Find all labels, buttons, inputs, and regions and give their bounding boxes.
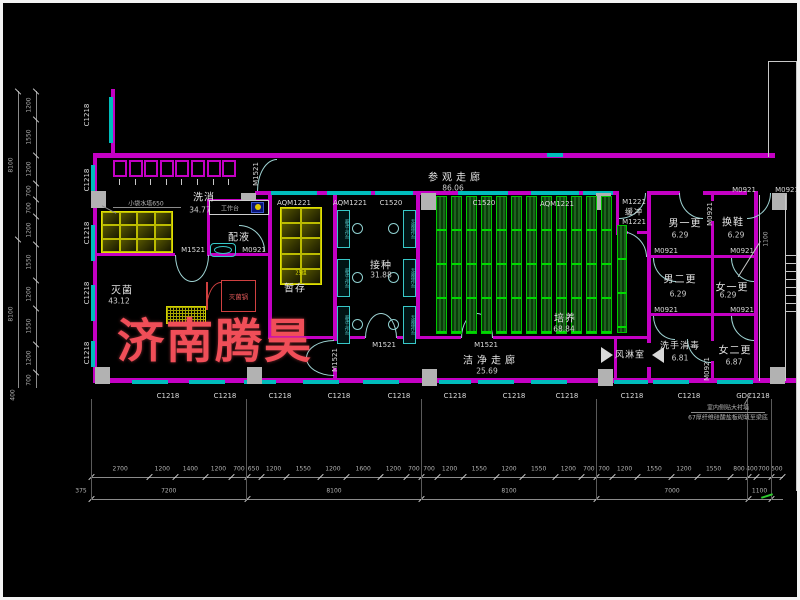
stair-width-dim: 1100 [763,231,770,246]
air-shower-door-left [601,347,613,363]
shelf-cell [155,212,173,225]
dim-tick [780,474,786,480]
door-code: M0921 [703,357,711,381]
dim-value: 1200 [26,161,33,176]
room-area-nanyigeng: 6.29 [672,231,689,240]
door-code: M0921 [730,306,754,314]
dim-value: 8100 [8,158,15,173]
room-label-fenglin: 风淋室 [615,348,645,361]
dim-value: 1550 [26,129,33,144]
dim-line [91,499,783,500]
column [422,369,437,386]
clean-bench: 超净工作台 [337,306,350,344]
door-code: M0921 [730,247,754,255]
dim-value: 1200 [26,350,33,365]
window-code-top: AQM1221 [333,199,367,207]
stair-line [785,287,796,288]
clean-bench: 无菌操作台 [403,306,416,344]
shelf-cell [155,225,173,238]
column [95,367,110,384]
room-label-nanyigeng: 男一更 [669,215,702,230]
dim-value: 1550 [531,466,546,473]
extension-line [91,399,92,500]
window-code-left: C1218 [83,104,91,127]
shelf-cell [301,208,321,223]
dim-value: 8100 [326,488,341,495]
door-arc [365,313,381,338]
stair-line [768,61,796,62]
shelf-cell [155,239,173,252]
door-code: M0921 [706,202,714,226]
wall [416,191,420,337]
window-code-bottom: C1218 [157,392,180,400]
room-label-peiye: 配液 [228,229,250,244]
wall [637,231,649,234]
wall [754,191,758,383]
shelf-cell [137,225,155,238]
room-label-zancun: 暂存 [284,280,306,295]
watermark-text: 济南腾昊 [117,303,313,372]
wall [91,253,175,256]
door-code: M1521 [181,246,205,254]
stair-line [796,61,797,491]
stair-line [759,195,760,381]
dim-value: 1200 [26,286,33,301]
dim-value: 1550 [26,254,33,269]
sink-tick [150,179,151,185]
shelf-cell [102,212,120,225]
window-code-bottom: C1218 [678,392,701,400]
stair-line [785,255,796,256]
door-arc [175,255,192,282]
stair-line [768,61,769,157]
dim-value: 1550 [647,466,662,473]
dim-value: 700 [26,202,33,213]
extension-line [596,399,597,500]
culture-rack [496,196,507,334]
window [327,191,371,195]
door-arc [257,159,277,191]
door-code: M0921 [654,247,678,255]
window-code-top: AQM1221 [540,200,574,208]
dim-value: 800 [733,466,744,473]
leader-line [113,207,181,208]
stair-line [785,303,796,304]
dim-value: 700 [583,466,594,473]
window-code-left: C1218 [83,342,91,365]
stair-line [785,271,796,272]
room-area-peiyang: 68.84 [553,325,574,334]
room-area-huanxie: 6.29 [728,231,745,240]
stair-line [785,295,796,296]
dim-value: 2700 [113,466,128,473]
shelf-cell [301,223,321,238]
wall [647,191,651,343]
dim-value: 700 [408,466,419,473]
window [91,285,95,321]
room-area-jiejing: 25.69 [476,367,497,376]
dim-value: 1200 [561,466,576,473]
stair-line [785,311,796,312]
dim-value: 700 [423,466,434,473]
stool [388,223,399,234]
stair-line [785,195,786,381]
shelf-cell [120,225,138,238]
sink-unit [191,160,205,177]
window [91,225,95,261]
cad-floor-plan: 110025组工作台灭菌锅小袋水塔650超净工作台超净工作台超净工作台无菌操作台… [0,0,800,600]
window [363,380,399,384]
window [717,380,753,384]
stool [352,223,363,234]
door-code: M0921 [732,186,756,194]
dim-value: 700 [233,466,244,473]
dim-value: 1200 [266,466,281,473]
door-arc [731,316,754,341]
stair-line [785,279,796,280]
dim-value: 8100 [501,488,516,495]
door-code: M1521 [474,341,498,349]
window [132,380,168,384]
shelf-count-label: 25组 [295,270,306,277]
dim-offset: 375 [75,488,86,495]
dim-value: 700 [26,185,33,196]
dim-value: 1200 [676,466,691,473]
sink-unit [129,160,143,177]
culture-rack [601,196,612,334]
wall [614,336,650,339]
window-code-bottom: C1218 [214,392,237,400]
culture-rack [466,196,477,334]
wall [647,191,680,195]
shelf-cell [102,225,120,238]
shelf-cell [281,254,301,269]
door-arc [653,316,675,340]
clean-bench: 超净工作台 [337,210,350,248]
window [531,191,579,195]
scale-dot-icon [255,204,261,210]
shelf-cell [102,239,120,252]
shelf-cell [120,212,138,225]
room-area-nanergeng: 6.29 [670,290,687,299]
stool [352,319,363,330]
wall-note-line1: 室内侧贴大衬墙 [707,403,749,412]
sink-tick [135,179,136,185]
wash-basin [210,243,236,257]
door-code: M1221 [622,198,646,206]
sink-unit [175,160,189,177]
room-label-huanxie: 换鞋 [722,214,744,229]
window [547,153,563,157]
shelf-cell [281,223,301,238]
dim-value: 1200 [155,466,170,473]
window-code-bottom: C1218 [328,392,351,400]
room-area-jiezhong: 31.88 [370,271,391,280]
dim-value: 1200 [26,97,33,112]
dim-value: 1200 [501,466,516,473]
door-arc [747,193,771,219]
window [653,380,689,384]
culture-rack [541,196,552,334]
dim-corner: 400 [10,389,17,400]
stair-line [785,263,796,264]
clean-bench: 超净工作台 [337,259,350,297]
wall [711,221,714,255]
dim-value: 700 [26,374,33,385]
window-code-bottom: C1218 [503,392,526,400]
room-area-nvyigeng: 6.29 [720,291,737,300]
culture-rack [586,196,597,334]
dim-value: 700 [758,466,769,473]
room-label-xixiao: 洗消 [193,189,215,204]
window [91,341,95,367]
wall [711,191,714,201]
dim-value: 1200 [386,466,401,473]
wall [711,313,714,341]
dim-value: 1200 [26,222,33,237]
dim-value: 650 [248,466,259,473]
window [614,380,648,384]
extension-line [771,399,772,500]
window-code-top: C1520 [473,199,496,207]
sink-unit [160,160,174,177]
window [189,380,225,384]
dim-value: 1200 [442,466,457,473]
dim-value: 7000 [664,488,679,495]
window-code-left: C1218 [83,282,91,305]
window-code-bottom: C1218 [388,392,411,400]
door-code: M0921 [775,186,799,194]
room-label-miejun: 灭菌 [111,282,133,297]
dim-value: 1400 [183,466,198,473]
sink-unit [207,160,221,177]
dim-value: 1600 [356,466,371,473]
window [271,191,317,195]
sink-unit [113,160,127,177]
sink-tick [228,179,229,185]
worktable-label: 工作台 [221,204,239,213]
room-label-huanchong: 缓冲 [625,207,643,218]
sink-tick [197,179,198,185]
stool [352,272,363,283]
basin-bowl-icon [214,246,232,254]
window-code-left: C1218 [83,169,91,192]
wall [93,153,775,158]
room-label-peiyang: 培养 [554,310,576,325]
door-code: M1521 [372,341,396,349]
door-code: M1521 [252,162,260,186]
room-area-xixiao: 34.77 [189,206,210,215]
extension-line [246,399,247,500]
room-label-nanergeng: 男二更 [664,271,697,286]
dim-value: 500 [771,466,782,473]
clean-bench: 无菌操作台 [403,210,416,248]
culture-rack [436,196,447,334]
room-label-canguan: 参观走廊 [428,169,484,184]
sink-unit [144,160,158,177]
shelf-cell [137,239,155,252]
storage-shelf-washroom [101,211,173,253]
dim-value: 7200 [161,488,176,495]
window-code-top: AQM1221 [277,199,311,207]
door-code: M0921 [654,306,678,314]
sink-tick [213,179,214,185]
extension-line [421,399,422,500]
door-code: M1221 [622,218,646,226]
window-code-bottom: C1218 [621,392,644,400]
window-code-bottom: GDC1218 [736,392,770,400]
column [598,369,613,386]
dim-value: 700 [598,466,609,473]
sink-tick [181,179,182,185]
window [458,191,508,195]
dim-value: 1200 [325,466,340,473]
shelf-cell [281,238,301,253]
culture-rack [526,196,537,334]
wall [493,336,614,339]
door-code: M1521 [331,348,339,372]
window [303,380,339,384]
clean-bench: 无菌操作台 [403,259,416,297]
dim-value: 1550 [26,318,33,333]
sink-unit [222,160,236,177]
column [770,367,785,384]
dim-value: 1550 [706,466,721,473]
window-code-bottom: C1218 [444,392,467,400]
dim-value: 8100 [8,306,15,321]
dim-value: 1100 [752,488,767,495]
culture-rack [617,225,627,333]
door-code: M0921 [242,246,266,254]
door-arc [192,255,209,282]
column [421,193,436,210]
window [478,380,514,384]
shelf-cell [137,212,155,225]
shelf-cell [301,238,321,253]
window [375,191,413,195]
window-code-top: C1520 [380,199,403,207]
room-area-xishou: 6.81 [672,354,689,363]
dim-value: 1550 [296,466,311,473]
room-label-nvergeng: 女二更 [719,342,752,357]
window [531,380,567,384]
shelf-cell [301,254,321,269]
room-label-xishou: 洗手消毒 [660,339,700,352]
culture-rack [511,196,522,334]
dim-value: 1550 [472,466,487,473]
sink-tick [119,179,120,185]
dim-value: 1200 [617,466,632,473]
dim-value: 1200 [211,466,226,473]
wall-note-line2: 67厚纤维硅酸盐板砌筑至梁底 [688,413,768,422]
window-code-left: C1218 [83,222,91,245]
window [439,380,471,384]
room-label-jiejing: 洁净走廊 [463,352,519,367]
shelf-cell [281,208,301,223]
window-code-bottom: C1218 [556,392,579,400]
window-code-bottom: C1218 [269,392,292,400]
wall [711,255,714,313]
stool [388,319,399,330]
room-area-canguan: 86.06 [442,184,463,193]
room-label-jiezhong: 接种 [370,257,392,272]
culture-rack [481,196,492,334]
shelf-cell [120,239,138,252]
sink-tick [166,179,167,185]
room-area-nvergeng: 6.87 [726,358,743,367]
window [109,97,113,143]
culture-rack [451,196,462,334]
